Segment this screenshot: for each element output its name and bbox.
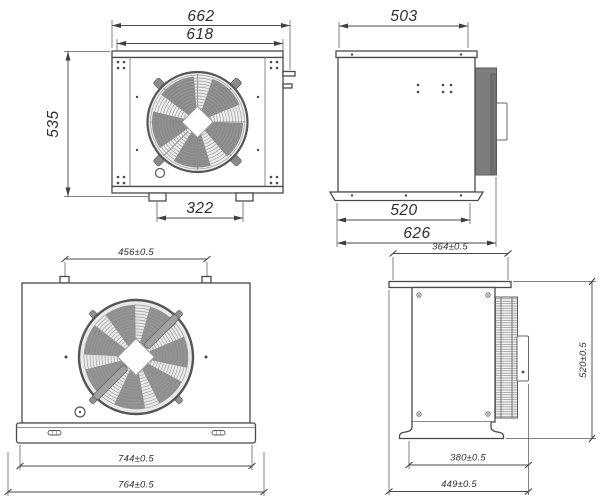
- refrigerant-pipe-upper: [283, 72, 295, 77]
- coil-fin-edge: [491, 74, 497, 175]
- mount-tab-right: [202, 277, 211, 284]
- technical-drawing-canvas: 662 618 535 322: [0, 0, 600, 501]
- dim-label-764: 764±0.5: [118, 480, 154, 491]
- foot-right: [236, 193, 253, 201]
- housing-top-strip: [112, 51, 283, 58]
- dimension-618: 618: [117, 26, 283, 51]
- top-flange-plate: [389, 282, 511, 288]
- view-side-top: 503 520 626: [330, 8, 507, 247]
- fan-guard-2-icon: [78, 295, 200, 420]
- side-body-2: [412, 288, 495, 423]
- view-front-top: 662 618 535 322: [45, 8, 295, 222]
- drain-hole: [156, 169, 165, 178]
- dimension-322: 322: [157, 200, 243, 222]
- dimension-364: 364±0.5: [390, 242, 512, 281]
- dimension-503: 503: [339, 8, 468, 48]
- side-body: [338, 58, 475, 193]
- side-top-strip: [336, 51, 477, 58]
- dim-label-449: 449±0.5: [441, 479, 477, 490]
- guard-bracket: [517, 336, 529, 381]
- dim-label-380: 380±0.5: [450, 453, 486, 464]
- view-side-bottom: 364±0.5 520±0.5 380±0.5 449±0.5: [386, 242, 597, 496]
- foot-left: [149, 193, 166, 201]
- dim-label-662: 662: [187, 8, 214, 25]
- dim-label-744: 744±0.5: [118, 454, 154, 465]
- mount-tab-left: [60, 277, 69, 284]
- dimension-744: 744±0.5: [17, 445, 256, 470]
- dim-label-618: 618: [186, 26, 213, 43]
- guard-fin-stack: [496, 297, 518, 418]
- dim-label-456: 456±0.5: [118, 247, 154, 258]
- dim-label-535: 535: [45, 110, 62, 137]
- drawing-svg: 662 618 535 322: [0, 0, 600, 501]
- refrigerant-pipe-lower: [283, 84, 292, 88]
- dim-label-520: 520: [390, 202, 417, 219]
- dim-label-364: 364±0.5: [432, 242, 468, 253]
- housing-bottom-strip: [112, 187, 283, 194]
- dimension-456: 456±0.5: [62, 247, 211, 276]
- dimension-520: 520: [337, 202, 470, 224]
- dim-label-322: 322: [186, 200, 213, 217]
- dim-label-626: 626: [403, 225, 430, 242]
- coil-bracket: [497, 103, 508, 140]
- view-front-bottom: 456±0.5 744±0.5 764±0.5: [5, 247, 268, 496]
- dim-label-503: 503: [390, 8, 417, 25]
- base-channel: [400, 422, 504, 439]
- dim-label-520v: 520±0.5: [578, 342, 589, 378]
